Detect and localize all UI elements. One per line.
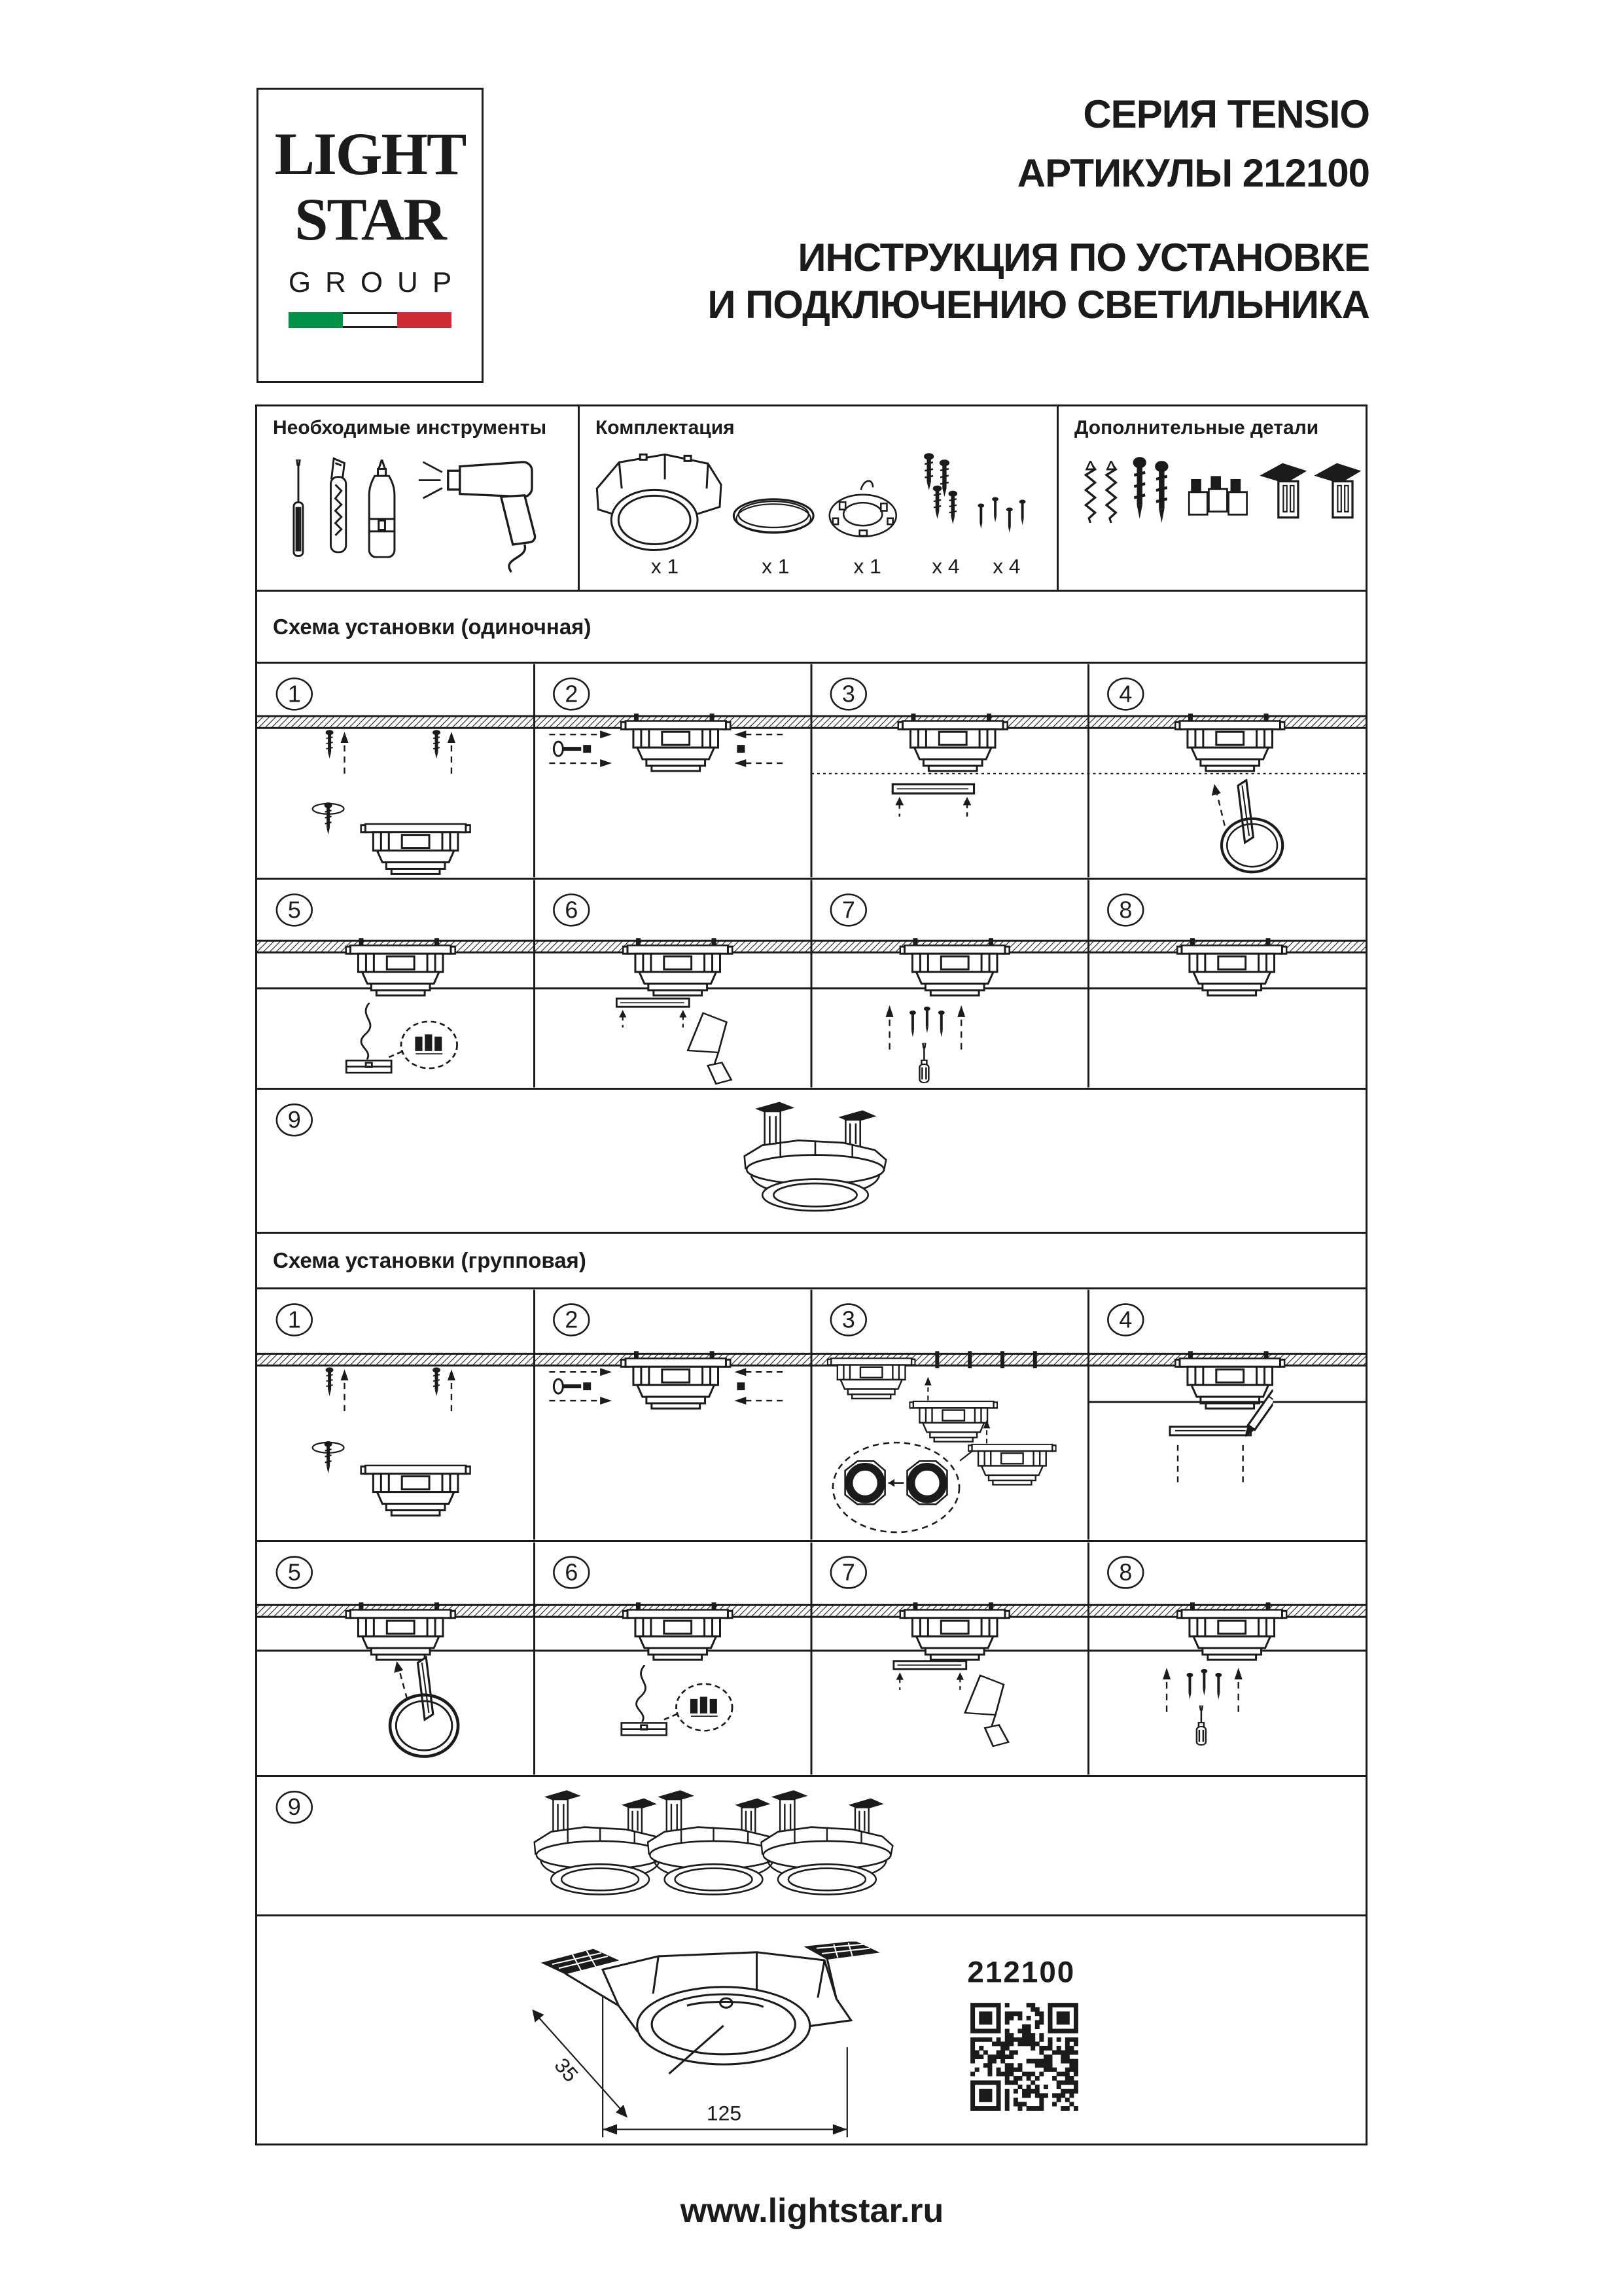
step-number: 6: [565, 1559, 578, 1585]
single-steps-5-8-diagram: 5 6 7 8: [257, 880, 1366, 1088]
diagram-insert-ring: [1175, 713, 1284, 872]
o-ring-icon: [733, 499, 813, 533]
fixing-ring-icon: [830, 481, 896, 537]
diagram-connect-wires: [346, 938, 457, 1073]
finished-fixture-3d: [535, 1791, 666, 1895]
mounting-frame-icon: [597, 454, 721, 550]
extras-title: Дополнительные детали: [1074, 417, 1318, 439]
article-number: 212100: [967, 1955, 1075, 1988]
diagram-join-frames: [828, 1351, 1056, 1532]
screw-icon: [940, 459, 949, 497]
step-number: 9: [288, 1794, 301, 1820]
single-steps-1-4-diagram: 1 2 3 4: [257, 664, 1366, 878]
flag-red-stripe: [397, 312, 451, 328]
heat-gun-icon: [419, 462, 535, 572]
finished-fixture-3d: [648, 1791, 779, 1895]
single-step-9-diagram: 9: [257, 1090, 1366, 1232]
bracket-icon: [1316, 464, 1360, 518]
screwdriver-icon: [294, 459, 303, 556]
extras-cell: Дополнительные детали: [1057, 406, 1369, 590]
qty-label: x 4: [932, 554, 959, 578]
qty-label: x 1: [854, 554, 881, 578]
kit-title: Комплектация: [595, 417, 735, 439]
instruction-line-2: И ПОДКЛЮЧЕНИЮ СВЕТИЛЬНИКА: [519, 281, 1369, 329]
screw-icon: [1155, 461, 1168, 523]
qty-label: x 1: [762, 554, 789, 578]
flag-white-stripe: [343, 312, 397, 328]
small-screw-icon: [978, 503, 984, 529]
parts-row: Необходимые инструменты Комплектация: [257, 406, 1366, 590]
title-block: СЕРИЯ TENSIO АРТИКУЛЫ 212100 ИНСТРУКЦИЯ …: [519, 90, 1369, 329]
diagram-putty-screws: [1163, 1602, 1286, 1745]
tools-title: Необходимые инструменты: [273, 417, 546, 439]
qty-label: x 1: [651, 554, 679, 578]
dimensions-diagram: 35 125 212100: [257, 1916, 1366, 2144]
step-number: 5: [288, 1559, 301, 1585]
dowel-icon: [1086, 461, 1095, 523]
small-screw-icon: [1006, 507, 1013, 533]
step-number: 3: [842, 1306, 855, 1333]
group-steps-1-4-diagram: 1 2 3 4: [257, 1289, 1366, 1540]
glue-bottle-icon: [369, 459, 395, 557]
dowel-icon: [1106, 461, 1116, 523]
diagram-mark-opening: [1089, 1351, 1366, 1485]
series-title: СЕРИЯ TENSIO: [519, 90, 1369, 139]
step-number: 3: [842, 681, 855, 707]
screw-icon: [1133, 457, 1146, 519]
step-number: 4: [1119, 1306, 1132, 1333]
step-number: 1: [288, 1306, 301, 1333]
step-number: 2: [565, 1306, 578, 1333]
diagram-insert-ring: [346, 1602, 459, 1756]
single-step-9: 9: [257, 1088, 1366, 1232]
step-number: 8: [1119, 897, 1132, 923]
dimensions-panel: 35 125 212100: [257, 1914, 1366, 2144]
group-section-title: Схема установки (групповая): [273, 1248, 586, 1273]
instruction-line-1: ИНСТРУКЦИЯ ПО УСТАНОВКЕ: [519, 234, 1369, 281]
website-url[interactable]: www.lightstar.ru: [0, 2191, 1624, 2231]
logo-word-star: STAR: [258, 189, 482, 249]
step-number: 5: [288, 897, 301, 923]
single-section-title: Схема установки (одиночная): [273, 615, 591, 639]
article-title: АРТИКУЛЫ 212100: [519, 149, 1369, 198]
single-section-header: Схема установки (одиночная): [257, 590, 1366, 662]
fixture-dimension-3d: [543, 1941, 878, 2073]
required-tools-cell: Необходимые инструменты: [257, 406, 578, 590]
step-number: 1: [288, 681, 301, 707]
logo-word-light: LIGHT: [258, 124, 482, 184]
diagram-putty: [894, 1602, 1010, 1746]
diagram-flush-mounted: [1177, 938, 1286, 996]
step-number: 8: [1119, 1559, 1132, 1585]
bracket-icon: [1262, 464, 1305, 518]
group-steps-5-8: 5 6 7 8: [257, 1540, 1366, 1775]
diagram-mark-holes: [313, 730, 470, 874]
instruction-table: Необходимые инструменты Комплектация: [255, 404, 1368, 2145]
step-number: 9: [288, 1107, 301, 1133]
step-number: 7: [842, 1559, 855, 1585]
group-step-9: 9: [257, 1775, 1366, 1914]
step-number: 4: [1119, 681, 1132, 707]
italian-flag-icon: [289, 312, 451, 328]
step-number: 7: [842, 897, 855, 923]
qty-label: x 4: [993, 554, 1020, 578]
instruction-title: ИНСТРУКЦИЯ ПО УСТАНОВКЕ И ПОДКЛЮЧЕНИЮ СВ…: [519, 234, 1369, 329]
screw-icon: [933, 486, 942, 519]
utility-knife-icon: [330, 459, 345, 552]
dim-depth-label: 35: [550, 2053, 582, 2086]
logo-word-group: GROUP: [258, 266, 482, 299]
qr-code: [970, 2003, 1078, 2111]
diagram-mark-holes: [313, 1367, 470, 1515]
dim-depth: 35: [533, 2009, 627, 2117]
diagram-putty-screws: [886, 938, 1010, 1083]
small-screw-icon: [992, 497, 998, 523]
finished-fixture-3d: [761, 1791, 892, 1895]
group-section-header: Схема установки (групповая): [257, 1232, 1366, 1287]
group-steps-1-4: 1 2 3 4: [257, 1287, 1366, 1540]
step-number: 6: [565, 897, 578, 923]
single-steps-5-8: 5 6 7 8: [257, 878, 1366, 1088]
single-steps-1-4: 1 2 3 4: [257, 662, 1366, 878]
small-screw-icon: [1019, 499, 1026, 525]
diagram-putty: [616, 938, 732, 1084]
flag-green-stripe: [289, 312, 343, 328]
diagram-connect-wires: [622, 1602, 733, 1735]
screw-icon: [948, 491, 957, 524]
kit-cell: Комплектация x 1 x 1 x 1 x 4: [578, 406, 1057, 590]
wire-connectors-icon: [1189, 477, 1246, 514]
instruction-sheet: LIGHT STAR GROUP СЕРИЯ TENSIO АРТИКУЛЫ 2…: [0, 0, 1624, 2296]
group-step-9-diagram: 9: [257, 1777, 1366, 1914]
finished-fixture-3d: [745, 1103, 887, 1211]
step-number: 2: [565, 681, 578, 707]
group-steps-5-8-diagram: 5 6 7 8: [257, 1542, 1366, 1775]
lightstar-logo: LIGHT STAR GROUP: [256, 88, 484, 383]
screw-icon: [924, 453, 934, 490]
dim-width-label: 125: [707, 2102, 741, 2125]
